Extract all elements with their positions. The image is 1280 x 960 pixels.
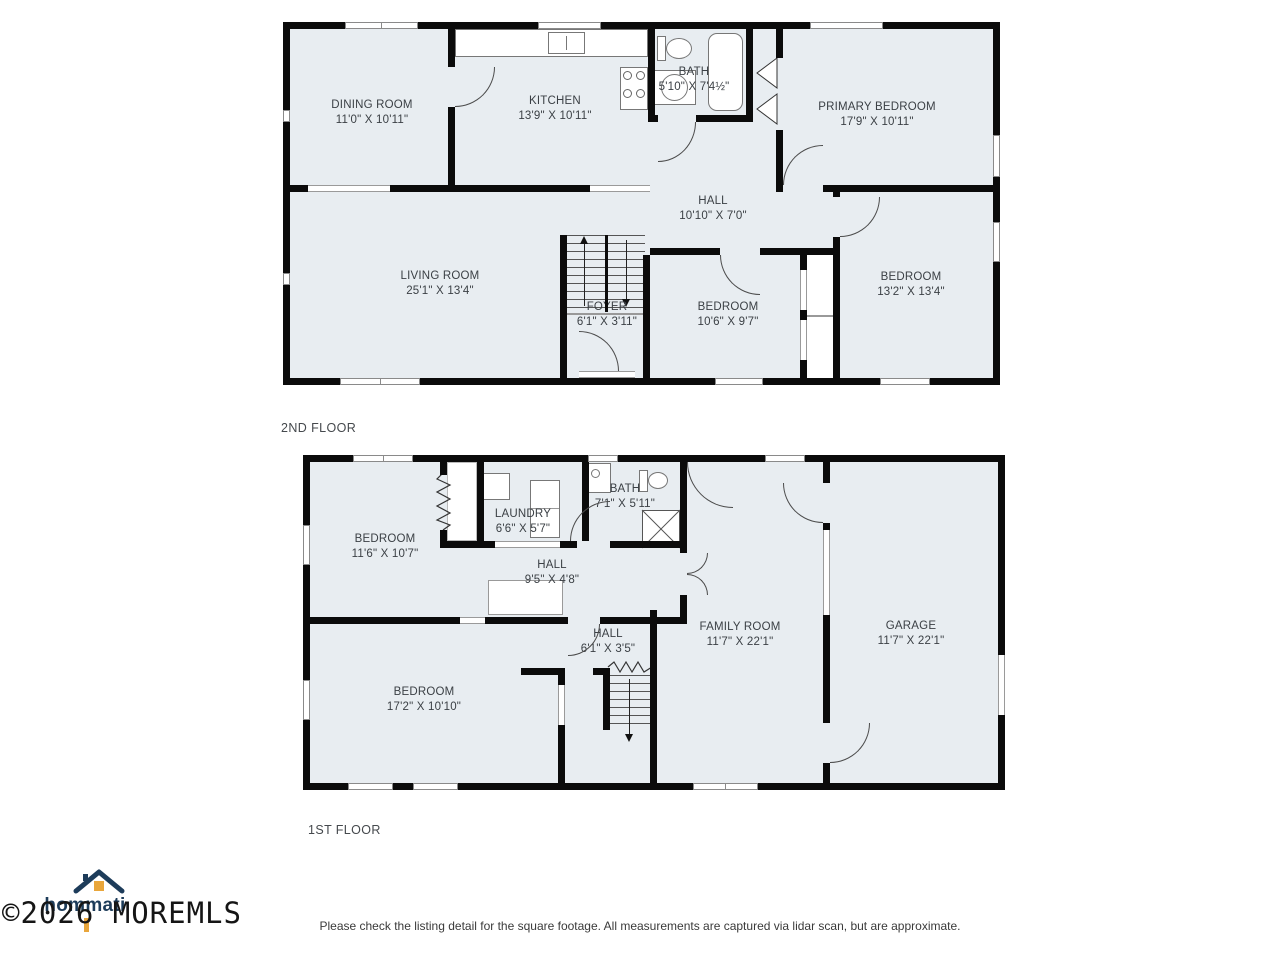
room-label: FAMILY ROOM 11'7" X 22'1"	[699, 620, 780, 649]
toilet	[666, 38, 692, 59]
zigzag-break-icon	[434, 473, 453, 530]
shower-drain	[591, 469, 600, 478]
door-arc	[720, 255, 760, 295]
room-dims: 5'10" X 7'4½"	[659, 80, 730, 95]
wall	[600, 617, 687, 624]
room-dims: 11'7" X 22'1"	[878, 634, 945, 649]
wall	[833, 237, 840, 378]
wall	[823, 185, 993, 192]
kitchen-sink	[548, 32, 585, 54]
window	[303, 680, 310, 720]
room-dims: 6'6" X 5'7"	[495, 522, 551, 537]
wall	[650, 610, 657, 783]
room-label: DINING ROOM 11'0" X 10'11"	[331, 98, 412, 127]
wall	[776, 29, 783, 58]
wall	[560, 235, 567, 378]
wall	[823, 763, 830, 783]
wall	[993, 22, 1000, 385]
door-opening	[579, 371, 635, 378]
second-floor-plan: DINING ROOM 11'0" X 10'11" KITCHEN 13'9"…	[283, 22, 1000, 385]
room-dims: 25'1" X 13'4"	[401, 284, 480, 299]
room-name: BATH	[659, 65, 730, 80]
wall	[696, 115, 753, 122]
room-dims: 6'1" X 3'11"	[577, 315, 637, 330]
wall	[643, 255, 650, 378]
room-name: LIVING ROOM	[401, 269, 480, 284]
room-name: BEDROOM	[698, 300, 759, 315]
wall	[303, 455, 310, 790]
wall	[648, 29, 655, 115]
room-dims: 17'9" X 10'11"	[818, 115, 936, 130]
wall	[833, 185, 840, 197]
door-opening	[460, 617, 485, 624]
window	[993, 135, 1000, 177]
room-dims: 11'6" X 10'7"	[352, 547, 419, 562]
door-arc	[840, 197, 880, 237]
stair-arrow-line	[626, 240, 627, 300]
door-arc	[783, 483, 823, 523]
room-label: BEDROOM 17'2" X 10'10"	[387, 685, 461, 714]
door-arc	[455, 67, 495, 107]
window	[880, 378, 930, 385]
room-name: GARAGE	[878, 619, 945, 634]
room-name: DINING ROOM	[331, 98, 412, 113]
door-opening	[998, 655, 1005, 715]
room-name: HALL	[525, 558, 579, 573]
room-label: HALL 9'5" X 4'8"	[525, 558, 579, 587]
first-floor-plan: BEDROOM 11'6" X 10'7" LAUNDRY 6'6" X 5'7…	[303, 455, 1005, 790]
washer	[482, 473, 510, 500]
room-name: BEDROOM	[877, 270, 945, 285]
wall	[650, 248, 720, 255]
door-opening	[590, 185, 650, 192]
wall	[610, 541, 687, 548]
stove-burner	[636, 89, 645, 98]
room-dims: 10'6" X 9'7"	[698, 315, 759, 330]
door-opening	[823, 530, 830, 615]
door-arc	[687, 462, 733, 508]
room-dims: 11'7" X 22'1"	[699, 635, 780, 650]
room-dims: 17'2" X 10'10"	[387, 700, 461, 715]
window	[693, 783, 758, 790]
window	[715, 378, 763, 385]
stair-arrow-line	[629, 679, 630, 735]
room-dims: 10'10" X 7'0"	[679, 209, 747, 224]
room-name: BEDROOM	[387, 685, 461, 700]
closet-divider	[807, 315, 833, 317]
room-name: HALL	[679, 194, 747, 209]
wall	[776, 130, 783, 192]
room-name: BEDROOM	[352, 532, 419, 547]
wall	[998, 455, 1005, 790]
door-arc	[570, 501, 610, 541]
wall	[680, 595, 687, 617]
room-name: KITCHEN	[518, 94, 591, 109]
window	[340, 378, 420, 385]
window	[538, 22, 601, 29]
wall	[823, 462, 830, 483]
room-dims: 11'0" X 10'11"	[331, 113, 412, 128]
room-name: PRIMARY BEDROOM	[818, 100, 936, 115]
door-opening	[800, 320, 807, 360]
window	[303, 525, 310, 565]
wall	[283, 22, 290, 385]
window	[588, 455, 618, 462]
stove-burner	[623, 89, 632, 98]
wall	[560, 541, 577, 548]
wall	[485, 617, 568, 624]
door-opening	[495, 541, 560, 548]
room-label: BEDROOM 13'2" X 13'4"	[877, 270, 945, 299]
room-label: GARAGE 11'7" X 22'1"	[878, 619, 945, 648]
room-name: LAUNDRY	[495, 507, 551, 522]
room-label: BEDROOM 10'6" X 9'7"	[698, 300, 759, 329]
window	[283, 273, 290, 285]
door-arc	[687, 574, 708, 595]
room-label: BATH 5'10" X 7'4½"	[659, 65, 730, 94]
window	[353, 455, 413, 462]
window	[345, 22, 418, 29]
floor-label-2nd: 2ND FLOOR	[281, 421, 356, 435]
door-opening	[800, 270, 807, 310]
room-dims: 13'2" X 13'4"	[877, 285, 945, 300]
wall	[290, 185, 308, 192]
wall	[440, 541, 495, 548]
window	[283, 110, 290, 122]
window	[348, 783, 393, 790]
room-name: FAMILY ROOM	[699, 620, 780, 635]
up-arrow-icon	[580, 236, 588, 244]
door-arc	[658, 122, 696, 162]
disclaimer-text: Please check the listing detail for the …	[0, 919, 1280, 933]
wall	[310, 617, 460, 624]
wall	[603, 675, 610, 730]
wall	[605, 235, 608, 312]
door-opening	[558, 685, 565, 725]
wall	[680, 462, 687, 553]
wall	[648, 115, 658, 122]
closet-chevrons-icon	[751, 56, 781, 128]
wall	[746, 29, 753, 122]
room-label: BEDROOM 11'6" X 10'7"	[352, 532, 419, 561]
room-label: LAUNDRY 6'6" X 5'7"	[495, 507, 551, 536]
wall	[448, 29, 455, 67]
wall	[390, 185, 590, 192]
room-name: BATH	[595, 482, 655, 497]
stove-burner	[623, 71, 632, 80]
wall	[760, 248, 840, 255]
toilet-tank	[657, 36, 666, 61]
window	[413, 783, 458, 790]
stair-arrow-line	[584, 244, 585, 306]
wall	[477, 462, 484, 541]
wall	[440, 462, 447, 475]
door-arc	[830, 723, 870, 763]
window	[765, 455, 805, 462]
closet-interior	[807, 255, 833, 378]
down-arrow-icon	[625, 734, 633, 742]
room-label: HALL 10'10" X 7'0"	[679, 194, 747, 223]
room-label: KITCHEN 13'9" X 10'11"	[518, 94, 591, 123]
window	[993, 222, 1000, 262]
stove-burner	[636, 71, 645, 80]
room-dims: 13'9" X 10'11"	[518, 109, 591, 124]
wall	[303, 783, 1005, 790]
floor-label-1st: 1ST FLOOR	[308, 823, 381, 837]
house-icon	[73, 868, 125, 893]
wall	[593, 668, 610, 675]
door-arc	[687, 553, 708, 574]
wall	[448, 107, 455, 190]
door-arc	[783, 145, 823, 185]
room-dims: 9'5" X 4'8"	[525, 573, 579, 588]
window	[810, 22, 883, 29]
room-label: PRIMARY BEDROOM 17'9" X 10'11"	[818, 100, 936, 129]
zigzag-break-icon	[608, 660, 652, 674]
door-opening	[308, 185, 390, 192]
door-arc	[579, 331, 619, 371]
room-label: LIVING ROOM 25'1" X 13'4"	[401, 269, 480, 298]
stairs-down	[610, 675, 650, 731]
wall	[521, 668, 565, 675]
